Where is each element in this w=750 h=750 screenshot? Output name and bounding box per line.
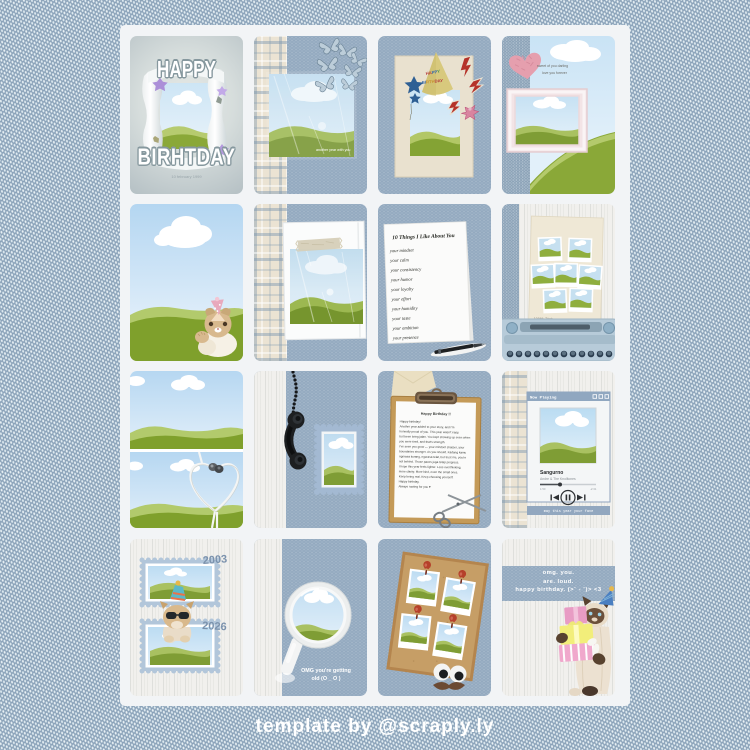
svg-text:old (O _ O ): old (O _ O ) [311,676,340,682]
svg-text:love you forever: love you forever [542,71,568,75]
svg-text:Happy birthday,: Happy birthday, [399,479,420,483]
svg-text:Always rooting for you ♥: Always rooting for you ♥ [398,484,430,489]
svg-text:may this year your fave: may this year your fave [544,509,594,514]
svg-text:2003: 2003 [202,553,227,567]
svg-text:your humor: your humor [390,277,413,283]
svg-text:your ambition: your ambition [392,325,420,331]
svg-text:Happy birthday!: Happy birthday! [400,419,421,423]
svg-text:Sangurno: Sangurno [540,470,563,476]
svg-text:sweet of you darling: sweet of you darling [537,64,568,68]
svg-text:-2:31: -2:31 [590,487,597,491]
svg-text:Happy Birthday !!: Happy Birthday !! [421,412,451,417]
svg-text:your mindset: your mindset [389,247,415,253]
svg-text:another year with you: another year with you [316,148,350,152]
svg-text:your taste: your taste [391,316,410,322]
svg-text:you were tired, and that's str: you were tired, and that's strength. [399,439,445,444]
svg-text:OMG you're getting: OMG you're getting [301,668,351,674]
svg-text:Andre & The Knolltones: Andre & The Knolltones [540,477,576,481]
svg-text:your calm: your calm [389,257,409,263]
svg-text:your humidity: your humidity [391,306,419,312]
svg-text:your effort: your effort [390,296,411,302]
svg-text:your presence: your presence [392,335,419,341]
svg-text:1:50: 1:50 [540,487,546,491]
svg-text:your loyalty: your loyalty [390,286,414,292]
svg-text:Now Playing: Now Playing [530,395,557,400]
svg-text:2026: 2026 [202,620,227,633]
